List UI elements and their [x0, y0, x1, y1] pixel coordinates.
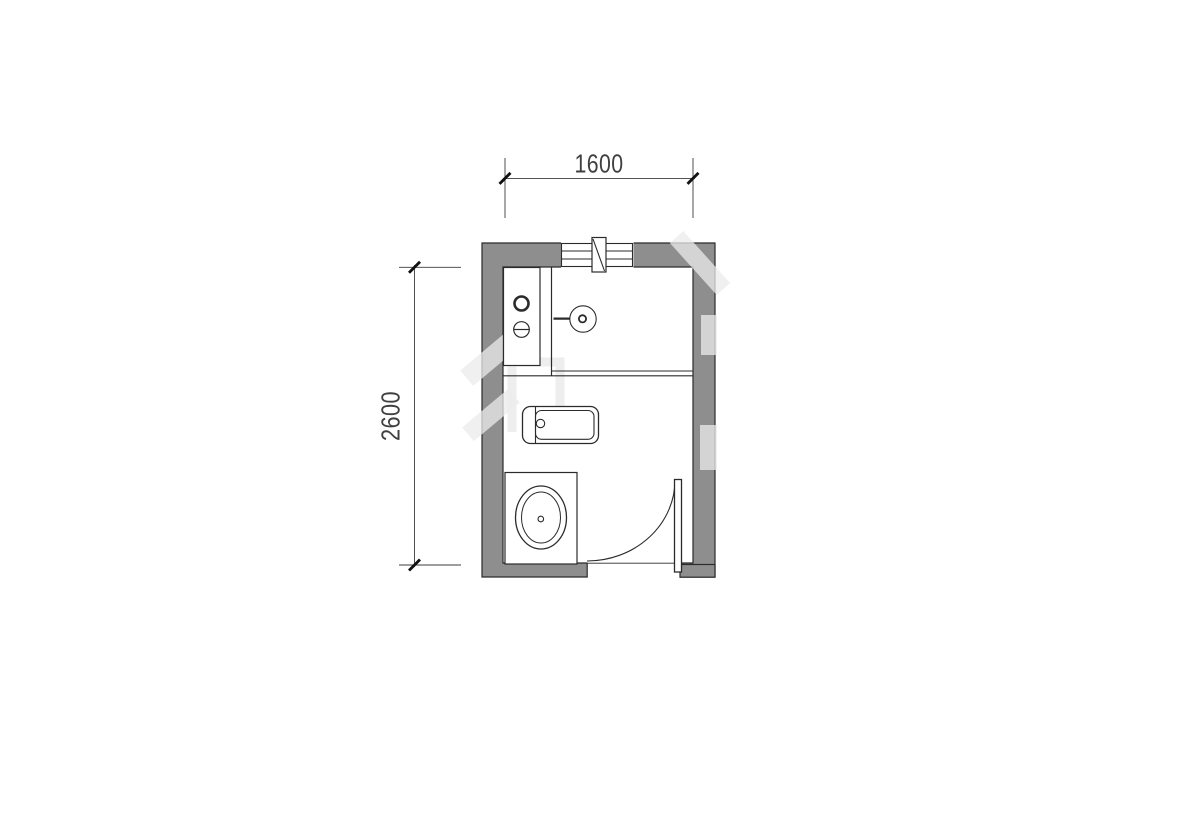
watermark-bar [701, 315, 717, 355]
toilet-drain [538, 516, 544, 522]
toilet [505, 473, 577, 565]
door-opening-gap [587, 562, 680, 579]
watermark-bar [700, 425, 717, 470]
dimension-label-width: 1600 [575, 149, 624, 179]
vanity-counter [504, 268, 541, 366]
shower-head-icon [554, 306, 597, 332]
door-leaf [675, 480, 682, 573]
dimension-left: 2600 [376, 262, 462, 571]
floor-plan-drawing: 1600 2600 [0, 0, 1198, 831]
bathtub-drain [536, 419, 544, 427]
bathtub-outline [523, 407, 599, 444]
shower-head-circle [570, 306, 596, 332]
vanity-counter-outline [504, 268, 541, 366]
bathtub [523, 407, 599, 444]
door-swing-arc [587, 480, 675, 561]
vent-duct [592, 238, 606, 273]
dimension-top: 1600 [500, 149, 699, 219]
dimension-label-depth: 2600 [376, 391, 406, 441]
floor-plan-page: 1600 2600 [0, 0, 1198, 831]
door-wall-stub [680, 565, 715, 578]
